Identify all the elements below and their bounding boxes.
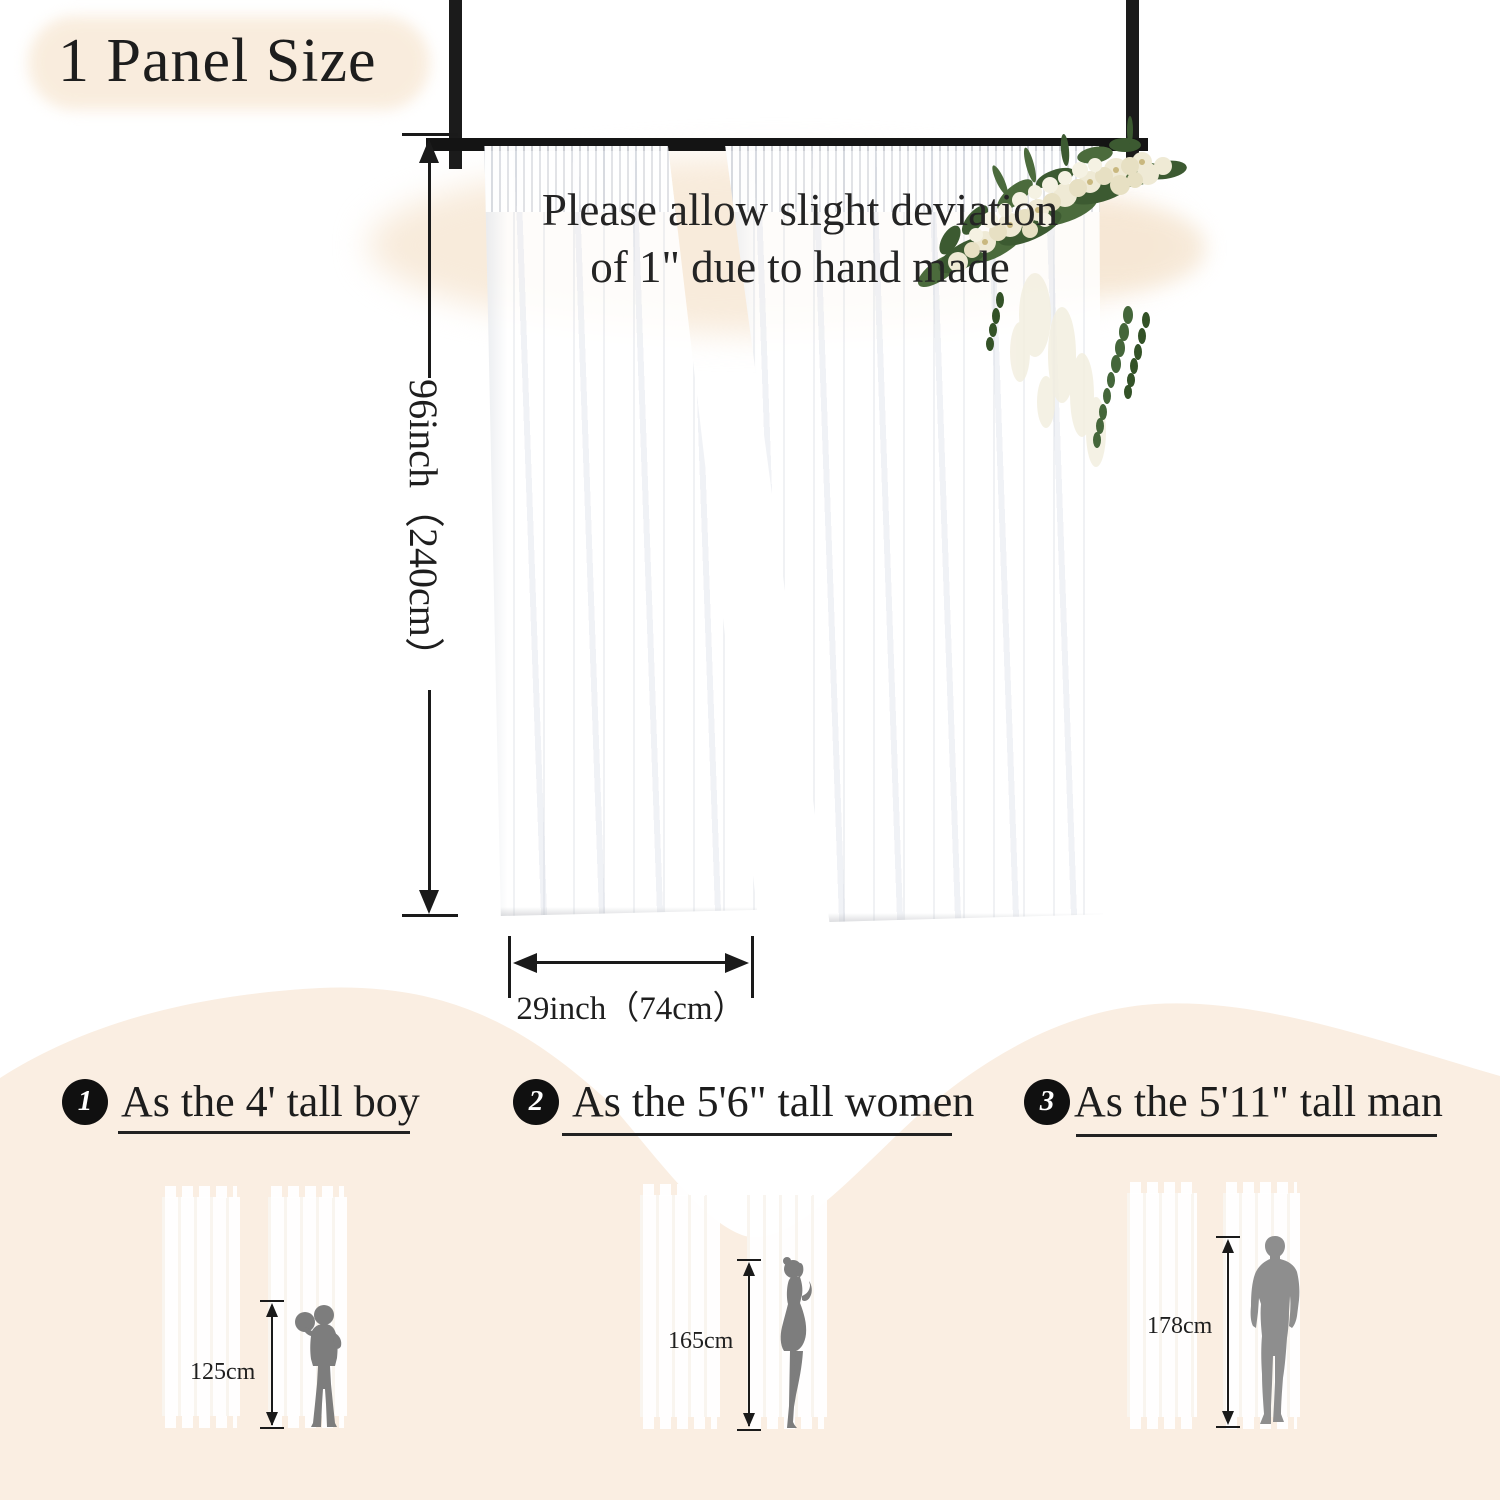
woman-arrow-top-tick bbox=[737, 1259, 761, 1261]
man-arrow-down-head-icon bbox=[1222, 1411, 1234, 1425]
deviation-note-line2: of 1" due to hand made bbox=[510, 239, 1090, 296]
width-dimension-label: 29inch（74cm） bbox=[481, 981, 781, 1029]
man-silhouette-icon bbox=[1244, 1236, 1306, 1428]
height-arrow-top-tick bbox=[402, 133, 458, 136]
boy-arrow-bottom-tick bbox=[260, 1427, 284, 1429]
height-dimension-label: 96inch（240cm） bbox=[398, 379, 456, 677]
boy-arrow-top-tick bbox=[260, 1300, 284, 1302]
height-arrow-down-head-icon bbox=[419, 890, 439, 914]
height-arrow-line-top bbox=[428, 160, 431, 378]
height-arrow-bottom-tick bbox=[402, 914, 458, 917]
product-size-infographic: 1 Panel Size Please allow slight deviati… bbox=[0, 0, 1500, 1500]
comparison-1-underline bbox=[118, 1131, 410, 1134]
man-arrow-line bbox=[1227, 1241, 1229, 1413]
comparison-2-label: As the 5'6" tall women bbox=[572, 1076, 974, 1127]
width-arrow-line bbox=[533, 961, 729, 964]
comparison-header-3: 3 As the 5'11" tall man bbox=[1024, 1076, 1443, 1127]
badge-1-icon: 1 bbox=[62, 1079, 108, 1125]
mini-curtain-panel bbox=[1127, 1193, 1197, 1417]
deviation-note: Please allow slight deviation of 1" due … bbox=[510, 182, 1090, 296]
man-arrow-top-tick bbox=[1216, 1236, 1240, 1238]
woman-arrow-line bbox=[748, 1264, 750, 1426]
woman-arrow-bottom-tick bbox=[737, 1429, 761, 1431]
comparison-1-label: As the 4' tall boy bbox=[121, 1076, 420, 1127]
boy-height-label: 125cm bbox=[190, 1359, 254, 1386]
woman-arrow-down-head-icon bbox=[743, 1413, 755, 1427]
comparison-3-label: As the 5'11" tall man bbox=[1074, 1076, 1443, 1127]
comparison-header-2: 2 As the 5'6" tall women bbox=[513, 1076, 974, 1127]
boy-arrow-line bbox=[271, 1305, 273, 1425]
man-arrow-bottom-tick bbox=[1216, 1426, 1240, 1428]
woman-silhouette-icon bbox=[766, 1256, 822, 1432]
mini-curtain-panel bbox=[640, 1195, 720, 1417]
comparison-header-1: 1 As the 4' tall boy bbox=[62, 1076, 420, 1127]
boy-silhouette-icon bbox=[294, 1304, 348, 1429]
deviation-note-line1: Please allow slight deviation bbox=[510, 182, 1090, 239]
comparison-2-underline bbox=[562, 1133, 952, 1136]
badge-2-icon: 2 bbox=[513, 1079, 559, 1125]
page-title: 1 Panel Size bbox=[58, 26, 377, 97]
boy-arrow-down-head-icon bbox=[266, 1412, 278, 1426]
height-arrow-line-bottom bbox=[428, 690, 431, 892]
man-height-label: 178cm bbox=[1147, 1313, 1211, 1340]
badge-3-icon: 3 bbox=[1024, 1079, 1070, 1125]
width-arrow-right-head-icon bbox=[725, 953, 749, 973]
comparison-3-underline bbox=[1076, 1134, 1437, 1137]
woman-height-label: 165cm bbox=[668, 1328, 732, 1355]
